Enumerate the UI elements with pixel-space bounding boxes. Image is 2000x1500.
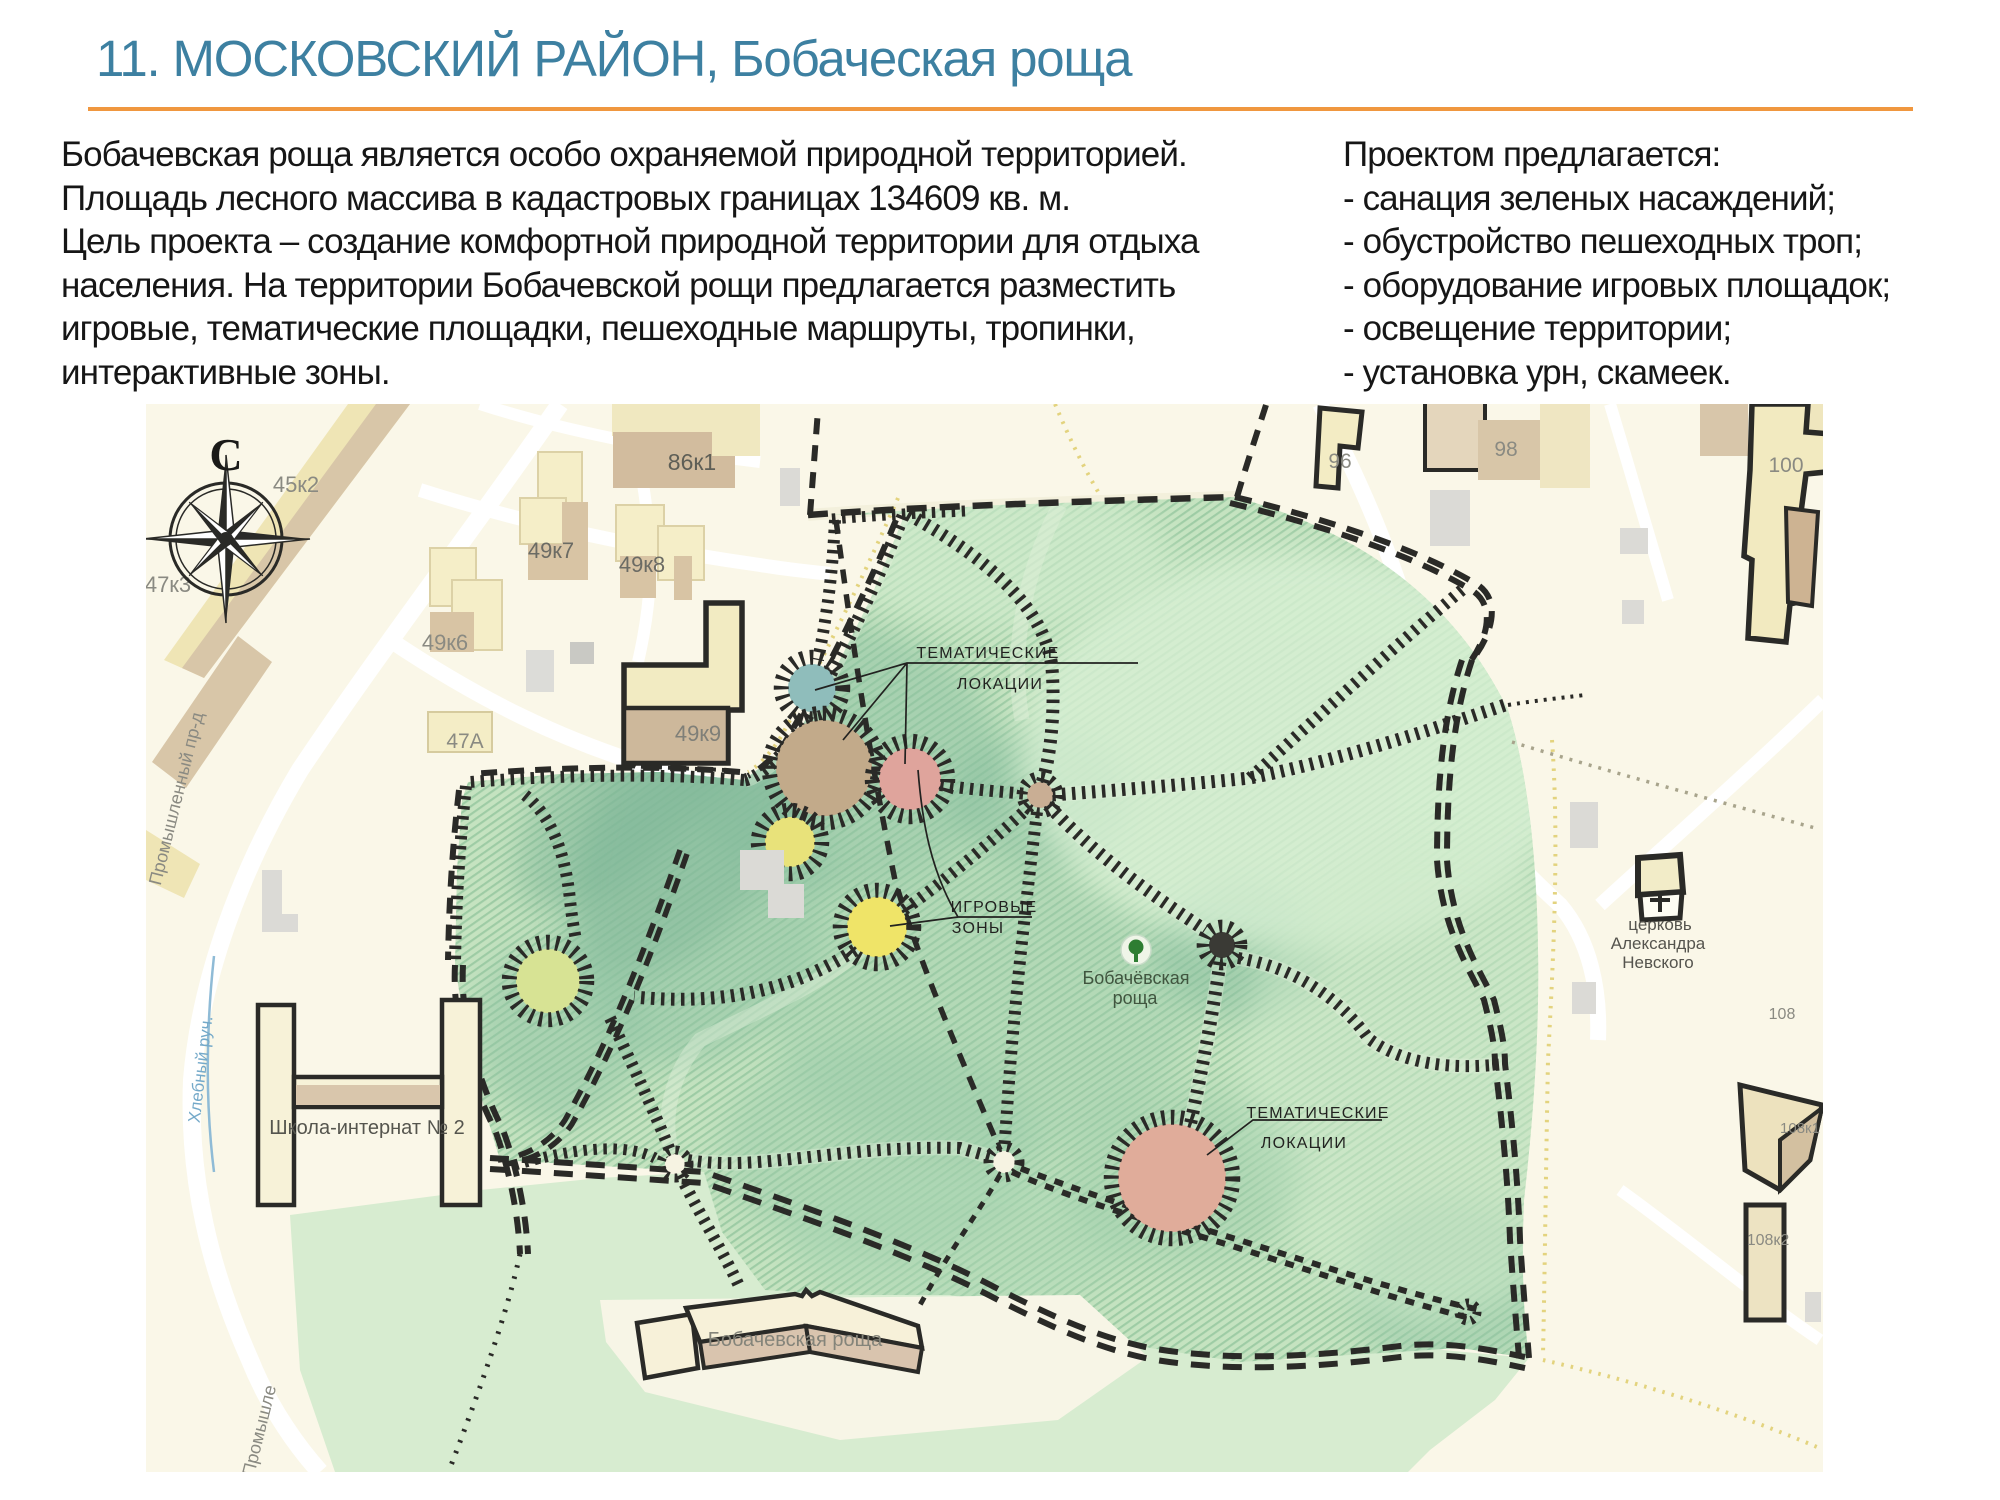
svg-text:ЛОКАЦИИ: ЛОКАЦИИ xyxy=(957,676,1043,693)
svg-text:108к2: 108к2 xyxy=(1747,1232,1790,1249)
svg-text:108: 108 xyxy=(1769,1006,1796,1023)
svg-text:96: 96 xyxy=(1328,450,1351,473)
svg-text:ЛОКАЦИИ: ЛОКАЦИИ xyxy=(1261,1135,1347,1152)
svg-text:Бобачевская роща: Бобачевская роща xyxy=(708,1329,883,1351)
svg-text:ТЕМАТИЧЕСКИЕ: ТЕМАТИЧЕСКИЕ xyxy=(916,645,1059,662)
svg-text:49к6: 49к6 xyxy=(422,630,468,655)
svg-text:роща: роща xyxy=(1113,988,1159,1008)
svg-text:Бобачёвская: Бобачёвская xyxy=(1082,968,1189,988)
svg-text:церковь: церковь xyxy=(1628,915,1692,934)
svg-text:47А: 47А xyxy=(446,730,483,753)
svg-text:98: 98 xyxy=(1494,438,1517,461)
svg-text:86к1: 86к1 xyxy=(668,449,716,475)
svg-text:108к1: 108к1 xyxy=(1780,1120,1820,1137)
svg-text:Александра: Александра xyxy=(1611,934,1706,953)
svg-text:100: 100 xyxy=(1768,454,1803,477)
svg-text:45к2: 45к2 xyxy=(273,472,319,497)
svg-text:49к8: 49к8 xyxy=(619,552,665,577)
svg-text:С: С xyxy=(209,429,242,480)
svg-text:Невского: Невского xyxy=(1622,953,1693,972)
svg-text:49к7: 49к7 xyxy=(528,538,574,563)
svg-text:Школа-интернат № 2: Школа-интернат № 2 xyxy=(269,1117,464,1139)
svg-text:49к9: 49к9 xyxy=(675,721,721,746)
svg-text:ИГРОВЫЕ: ИГРОВЫЕ xyxy=(951,899,1038,916)
svg-text:ЗОНЫ: ЗОНЫ xyxy=(952,920,1004,937)
